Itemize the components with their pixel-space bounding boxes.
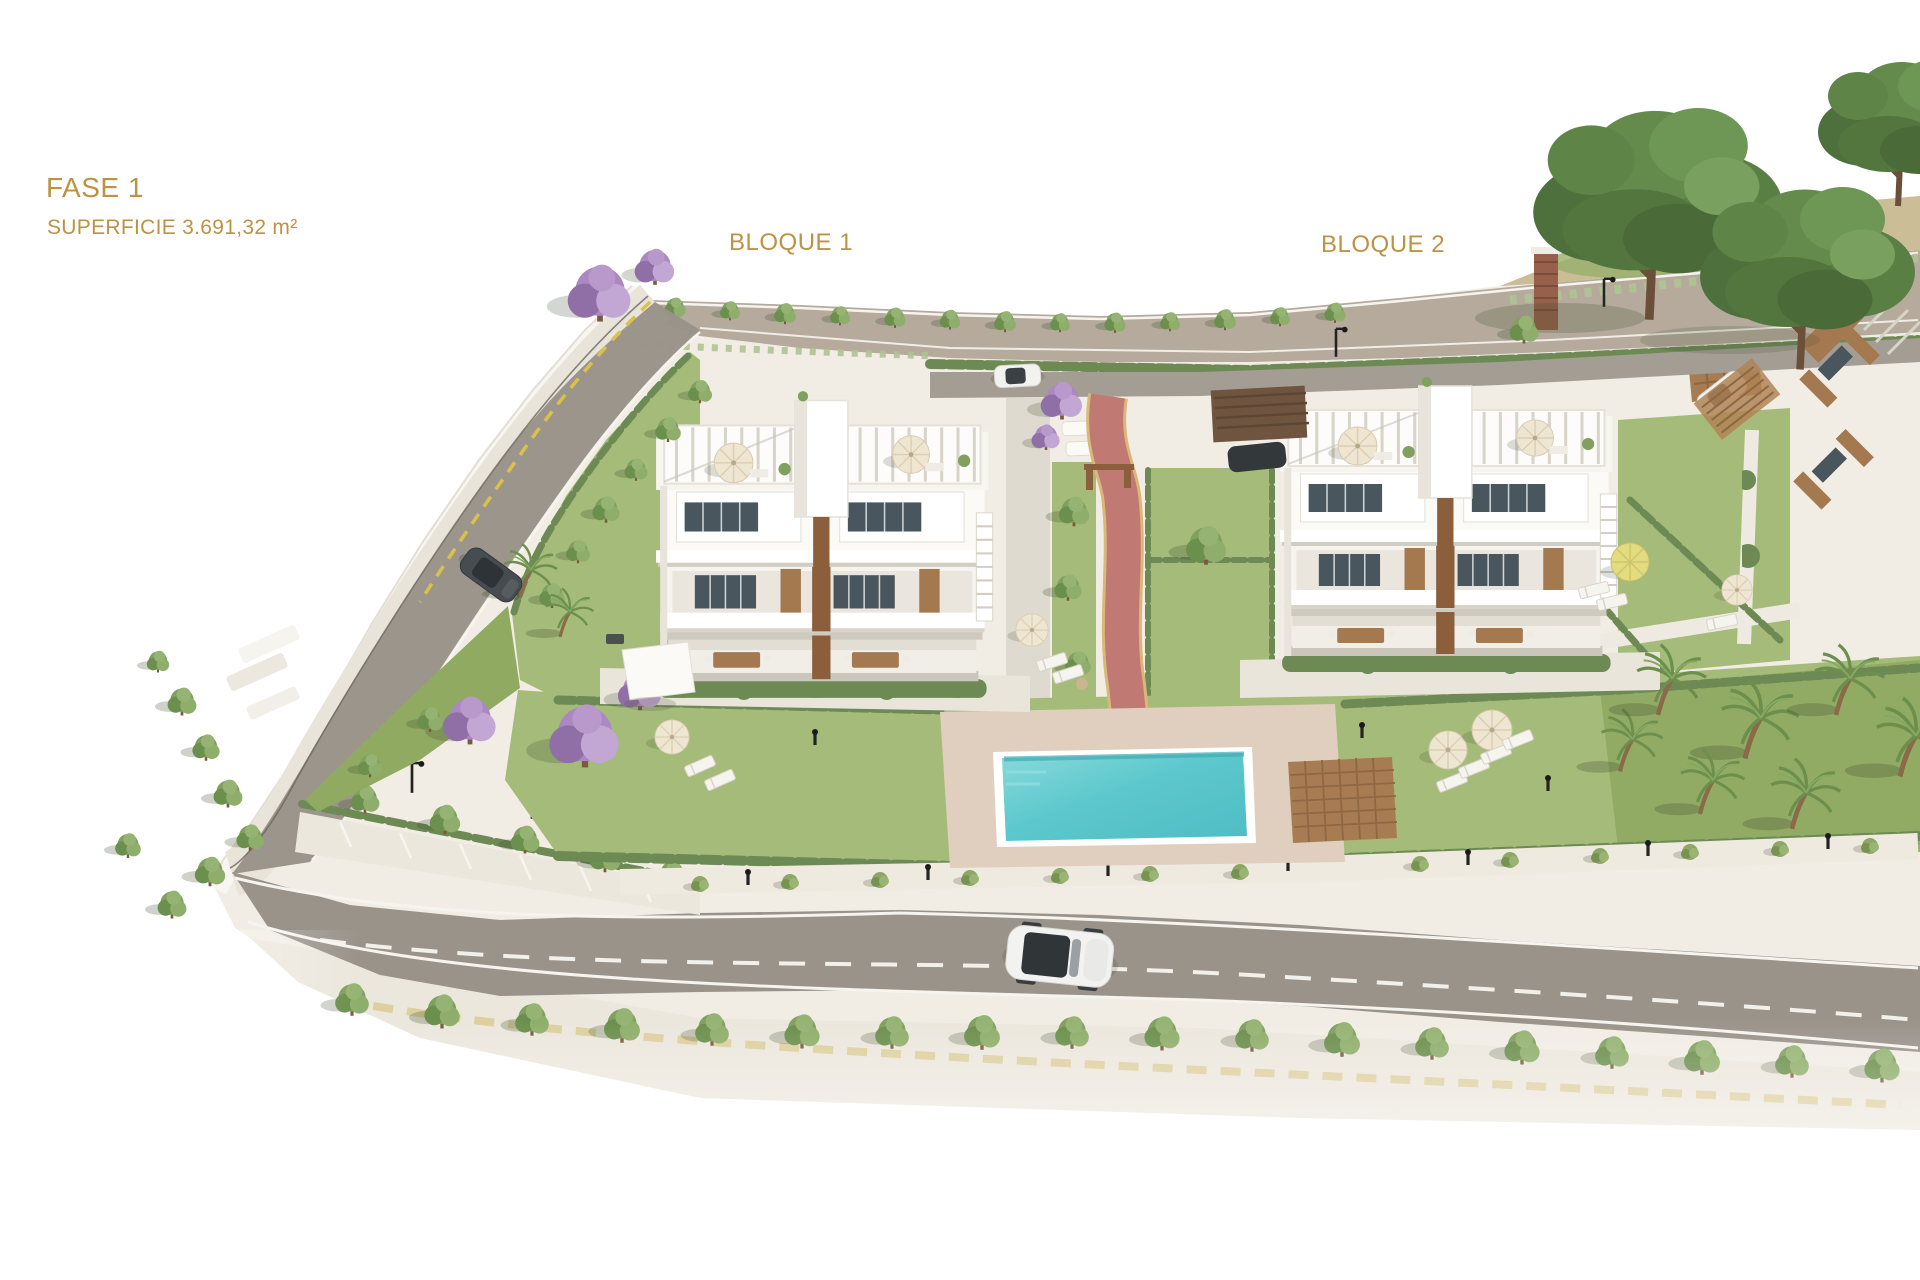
left-fade	[0, 930, 360, 1280]
bloque-2-building	[1280, 377, 1617, 674]
bloque-2-label: BLOQUE 2	[1321, 231, 1445, 259]
cliff-terraces	[225, 624, 300, 720]
masterplan-render: FASE 1 SUPERFICIE 3.691,32 m² BLOQUE 1 B…	[0, 0, 1920, 1280]
surface-area-label: SUPERFICIE 3.691,32 m²	[47, 216, 298, 240]
bloque-1-label: BLOQUE 1	[729, 229, 853, 257]
site-plan-canvas	[0, 0, 1920, 1280]
phase-label: FASE 1	[46, 172, 144, 204]
pool-wood-deck	[1288, 757, 1397, 843]
parked-white-car	[990, 363, 1045, 388]
pool-water	[1002, 753, 1247, 841]
bloque-1-building	[656, 391, 993, 700]
